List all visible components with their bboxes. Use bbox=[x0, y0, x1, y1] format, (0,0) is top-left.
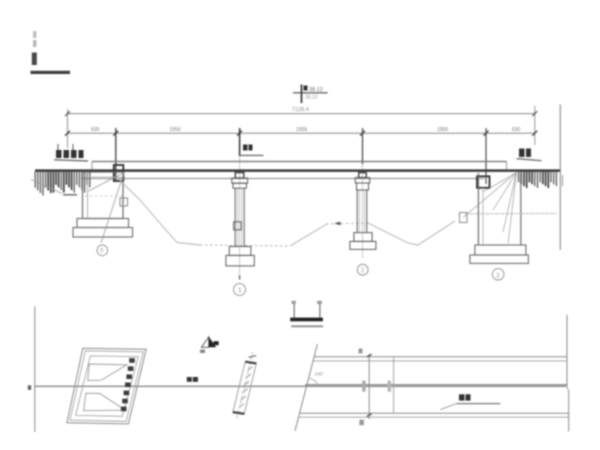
svg-text:630: 630 bbox=[91, 127, 100, 133]
svg-text:38.12: 38.12 bbox=[309, 87, 323, 93]
svg-text:1956: 1956 bbox=[296, 127, 307, 133]
svg-text:1956: 1956 bbox=[437, 127, 448, 133]
svg-text:38.12: 38.12 bbox=[305, 95, 318, 101]
svg-text:105°: 105° bbox=[315, 372, 325, 377]
svg-text:630: 630 bbox=[512, 127, 521, 133]
svg-text:1956: 1956 bbox=[170, 127, 181, 133]
svg-text:7128.4: 7128.4 bbox=[292, 107, 309, 113]
svg-text:1: 1 bbox=[238, 287, 242, 294]
